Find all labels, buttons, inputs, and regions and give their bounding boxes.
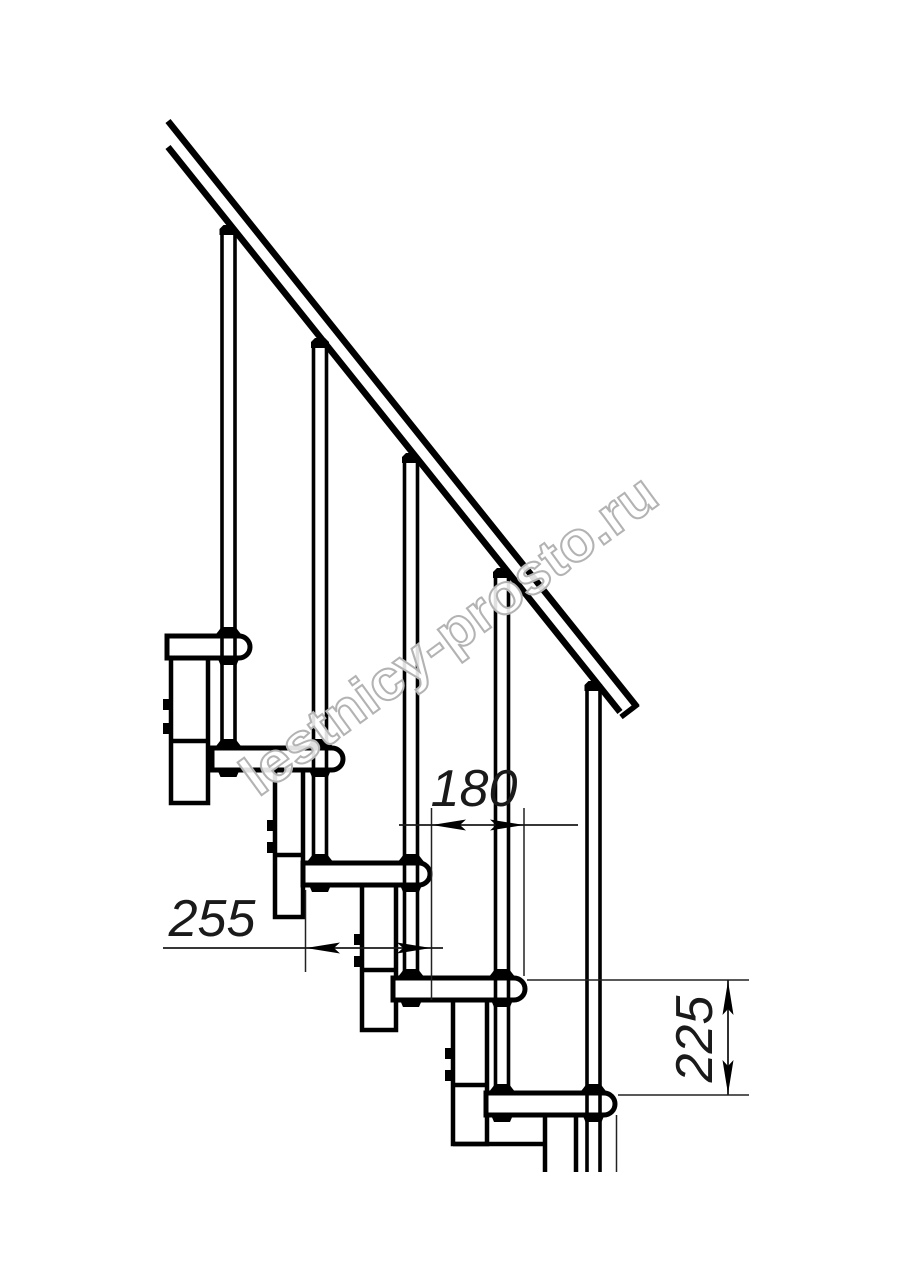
tread-nut: [218, 770, 240, 777]
tread-collar: [397, 969, 425, 978]
tread-collar: [488, 1084, 516, 1093]
tread-1: [167, 636, 250, 658]
baluster-1: [222, 230, 235, 750]
bolt-icon: [267, 842, 275, 853]
rail-collar: [311, 338, 329, 348]
tread-nut: [400, 1000, 422, 1007]
dimension-step-height: 225: [527, 980, 749, 1172]
handrail-end-cap: [621, 704, 638, 717]
watermark-text: lestnicy-prosto.ru: [228, 461, 669, 807]
bolt-icon: [445, 1070, 453, 1081]
support-column-4: [445, 1000, 487, 1144]
column-body: [453, 1000, 487, 1144]
tread-collar: [580, 1084, 608, 1093]
tread-collar: [397, 854, 425, 863]
dimension-value-step-run: 180: [431, 760, 518, 818]
tread-nut: [218, 658, 240, 665]
baluster-3: [405, 458, 418, 980]
rail-collar: [220, 225, 238, 235]
dimension-value-step-height: 225: [666, 995, 724, 1084]
tread-collar: [215, 627, 243, 636]
watermark: lestnicy-prosto.ru: [228, 461, 669, 807]
tread-nut: [309, 885, 331, 892]
bolt-icon: [267, 820, 275, 831]
tread-collar: [306, 854, 334, 863]
handrail-upper-line: [168, 121, 637, 707]
tread-nut: [583, 1115, 605, 1122]
tread-collar: [488, 969, 516, 978]
column-body: [362, 885, 396, 1030]
dimension-value-tread-depth: 255: [168, 890, 257, 948]
baluster-4: [496, 572, 509, 1095]
staircase-drawing: 180 255 225 lestnicy-prosto.ru: [0, 0, 914, 1280]
rail-collar: [402, 453, 420, 463]
tread-nut: [491, 1115, 513, 1122]
tread-nut: [491, 1000, 513, 1007]
support-column-3: [354, 885, 396, 1030]
bolt-icon: [354, 934, 362, 945]
tread-4: [393, 978, 525, 1000]
bolt-icon: [163, 723, 171, 734]
tread-collar: [215, 739, 243, 748]
bolt-icon: [445, 1048, 453, 1059]
bolt-icon: [163, 699, 171, 710]
bolt-icon: [354, 956, 362, 967]
rail-collar: [585, 681, 603, 691]
balusters: [222, 230, 600, 1172]
technical-drawing-canvas: 180 255 225 lestnicy-prosto.ru: [0, 0, 914, 1280]
tread-5: [486, 1093, 615, 1115]
column-body: [171, 658, 208, 803]
tread-nut: [400, 885, 422, 892]
baluster-2: [314, 343, 327, 865]
tread-3: [303, 863, 430, 885]
support-column-1: [163, 658, 208, 803]
